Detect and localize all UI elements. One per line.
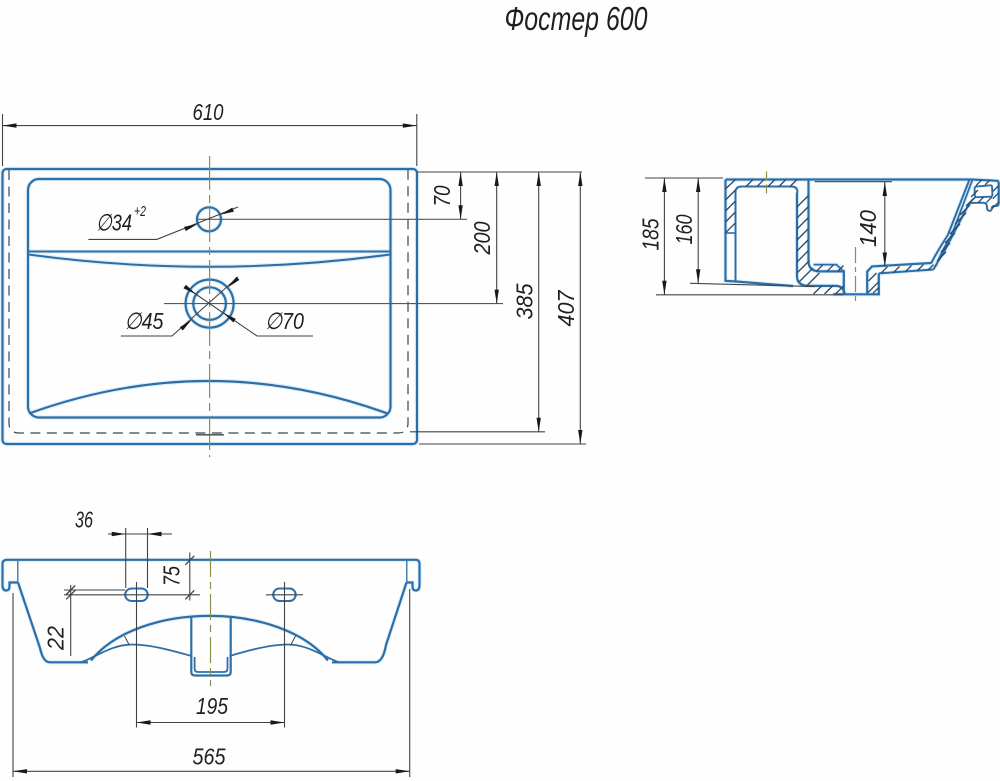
svg-text:195: 195 — [196, 693, 229, 719]
svg-text:385: 385 — [512, 283, 538, 320]
svg-text:75: 75 — [159, 565, 185, 586]
svg-text:∅45: ∅45 — [125, 308, 165, 334]
svg-text:∅34: ∅34 — [96, 210, 132, 236]
svg-text:22: 22 — [43, 626, 69, 651]
svg-text:160: 160 — [671, 215, 697, 245]
svg-text:Фостер 600: Фостер 600 — [505, 0, 648, 37]
svg-text:610: 610 — [193, 99, 224, 125]
svg-text:565: 565 — [193, 744, 227, 770]
svg-text:200: 200 — [469, 222, 495, 256]
svg-text:∅70: ∅70 — [265, 308, 304, 334]
svg-text:+2: +2 — [134, 204, 146, 220]
svg-text:70: 70 — [429, 186, 455, 207]
svg-text:407: 407 — [553, 290, 579, 327]
svg-text:185: 185 — [638, 218, 664, 251]
svg-text:140: 140 — [855, 210, 881, 247]
svg-text:36: 36 — [75, 507, 94, 533]
